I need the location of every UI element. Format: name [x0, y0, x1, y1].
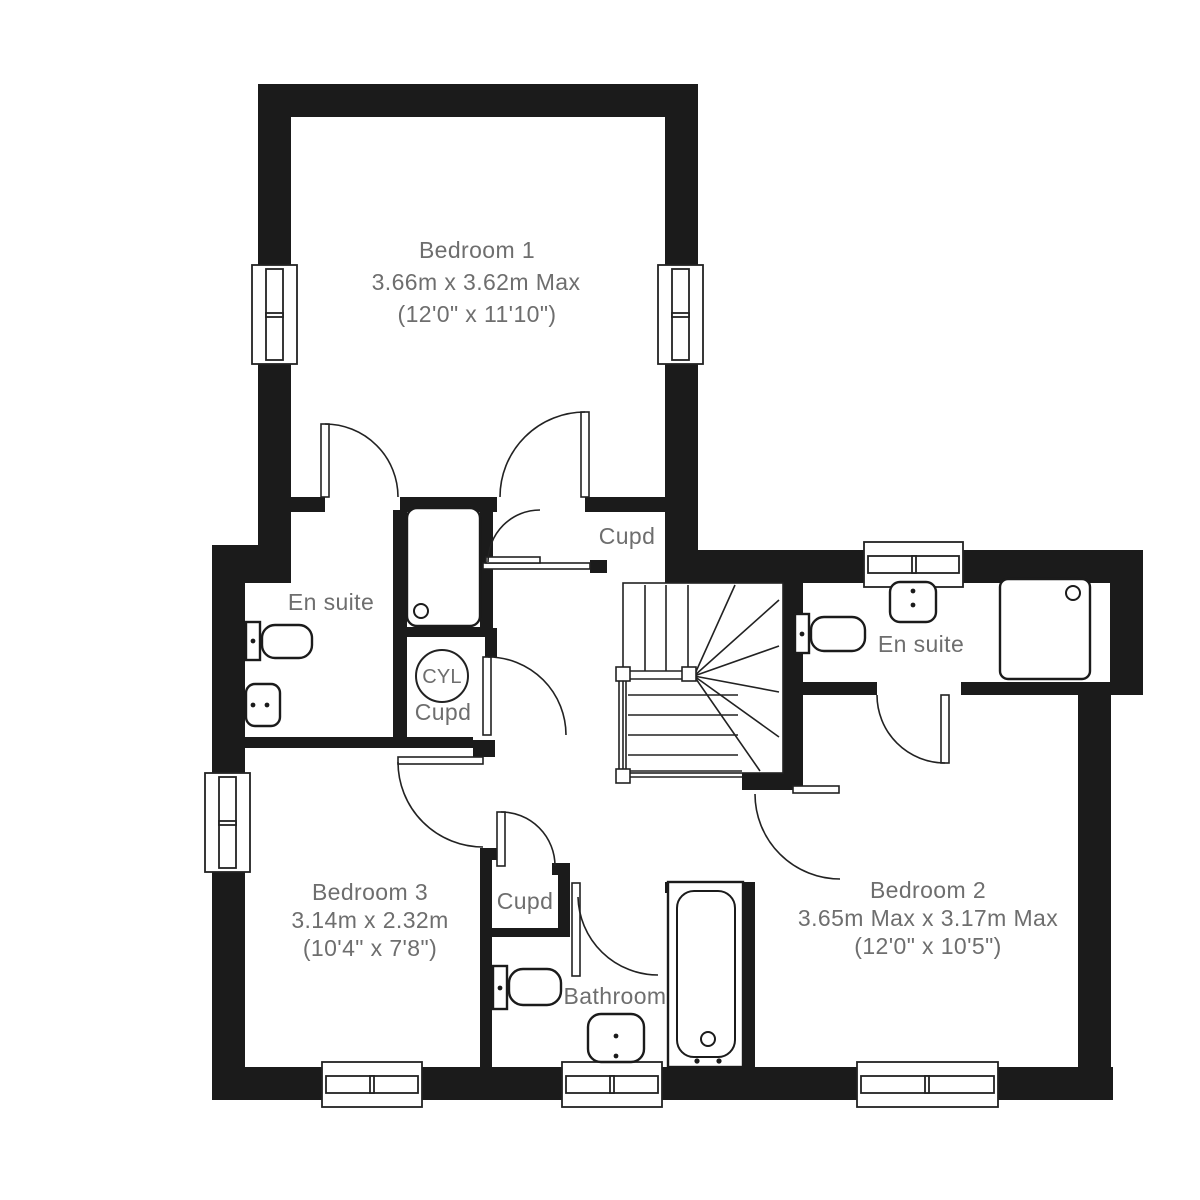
shower-icon-ensuite-right	[1000, 579, 1090, 679]
shower-icon-ensuite-left	[407, 508, 480, 626]
bedroom3-metric: 3.14m x 2.32m	[291, 907, 448, 933]
stair-newel-2	[682, 667, 696, 681]
door-cupboard-hall	[497, 812, 555, 866]
floor-plan: Bedroom 1 3.66m x 3.62m Max (12'0" x 11'…	[0, 0, 1200, 1200]
window-bed1-left	[252, 265, 297, 364]
sink-icon-ensuite-left	[246, 684, 280, 726]
wall-bed3-right	[480, 848, 492, 1067]
toilet-icon-ensuite-left	[246, 622, 312, 660]
floor-plan-page: Bedroom 1 3.66m x 3.62m Max (12'0" x 11'…	[0, 0, 1200, 1200]
wall-bed1-top	[258, 84, 698, 117]
bedroom2-name: Bedroom 2	[870, 877, 986, 903]
stair-newel-3	[616, 769, 630, 783]
wall-landing-cupd-sill	[483, 563, 590, 569]
wall-bed3-door-stub	[473, 740, 495, 757]
wall-cupd-right	[558, 863, 570, 937]
wall-bed1-bottom-c	[585, 497, 665, 512]
door-bedroom1	[500, 412, 589, 497]
door-bedroom2	[755, 786, 840, 879]
wall-step-left	[212, 545, 291, 583]
cupboard-cylinder-label: Cupd	[415, 699, 472, 725]
window-bed1-right	[658, 265, 703, 364]
bedroom3-imperial: (10'4" x 7'8")	[303, 935, 437, 961]
door-cupboard-landing	[486, 510, 540, 563]
door-ensuite-left	[321, 424, 398, 497]
window-left-lower	[205, 773, 250, 872]
wall-right-upper	[1110, 550, 1143, 695]
door-cupboard-cylinder	[483, 657, 566, 735]
window-bottom-bed2	[857, 1062, 998, 1107]
door-ensuite-right	[877, 695, 949, 763]
stairs	[616, 583, 783, 783]
wall-bed1-bottom-a	[291, 497, 325, 512]
cupboard-landing-label: Cupd	[599, 523, 656, 549]
stair-newel-1	[616, 667, 630, 681]
wall-ensuite2-bottom-a	[793, 682, 877, 695]
door-bathroom	[572, 883, 658, 976]
bathtub-icon	[668, 882, 743, 1067]
bedroom2-metric: 3.65m Max x 3.17m Max	[798, 905, 1058, 931]
window-ensuite-right-top	[864, 542, 963, 587]
wall-stair-bottom	[742, 773, 793, 790]
toilet-icon-ensuite-right	[795, 614, 865, 653]
sink-icon-bathroom	[588, 1014, 644, 1062]
wall-landing-cupd-stub	[590, 560, 607, 573]
window-bottom-bathroom	[562, 1062, 662, 1107]
door-bedroom3	[398, 757, 483, 847]
wall-shower-right	[480, 503, 493, 637]
window-bottom-bed3	[322, 1062, 422, 1107]
bedroom1-name: Bedroom 1	[419, 237, 535, 263]
bedroom3-name: Bedroom 3	[312, 879, 428, 905]
wall-bath-right	[743, 882, 755, 1067]
bathroom-label: Bathroom	[564, 983, 667, 1009]
ensuite-right-label: En suite	[878, 631, 964, 657]
sink-icon-ensuite-right	[890, 582, 936, 622]
cylinder-label: CYL	[422, 666, 462, 688]
wall-cupd-bottom	[480, 928, 570, 937]
bedroom1-metric: 3.66m x 3.62m Max	[372, 269, 581, 295]
wall-ensuite2-bottom-b	[961, 682, 1143, 695]
windows	[205, 265, 998, 1107]
ensuite-left-label: En suite	[288, 589, 374, 615]
wall-ensuite1-bottom	[212, 737, 473, 748]
wall-shower-bottom	[393, 627, 493, 637]
wall-cyl-stub	[485, 628, 497, 657]
bedroom1-imperial: (12'0" x 11'10")	[398, 301, 557, 327]
cupboard-hall-label: Cupd	[497, 888, 554, 914]
toilet-icon-bathroom	[493, 966, 561, 1009]
bedroom2-imperial: (12'0" x 10'5")	[854, 933, 1001, 959]
wall-right-lower	[1078, 682, 1111, 1100]
